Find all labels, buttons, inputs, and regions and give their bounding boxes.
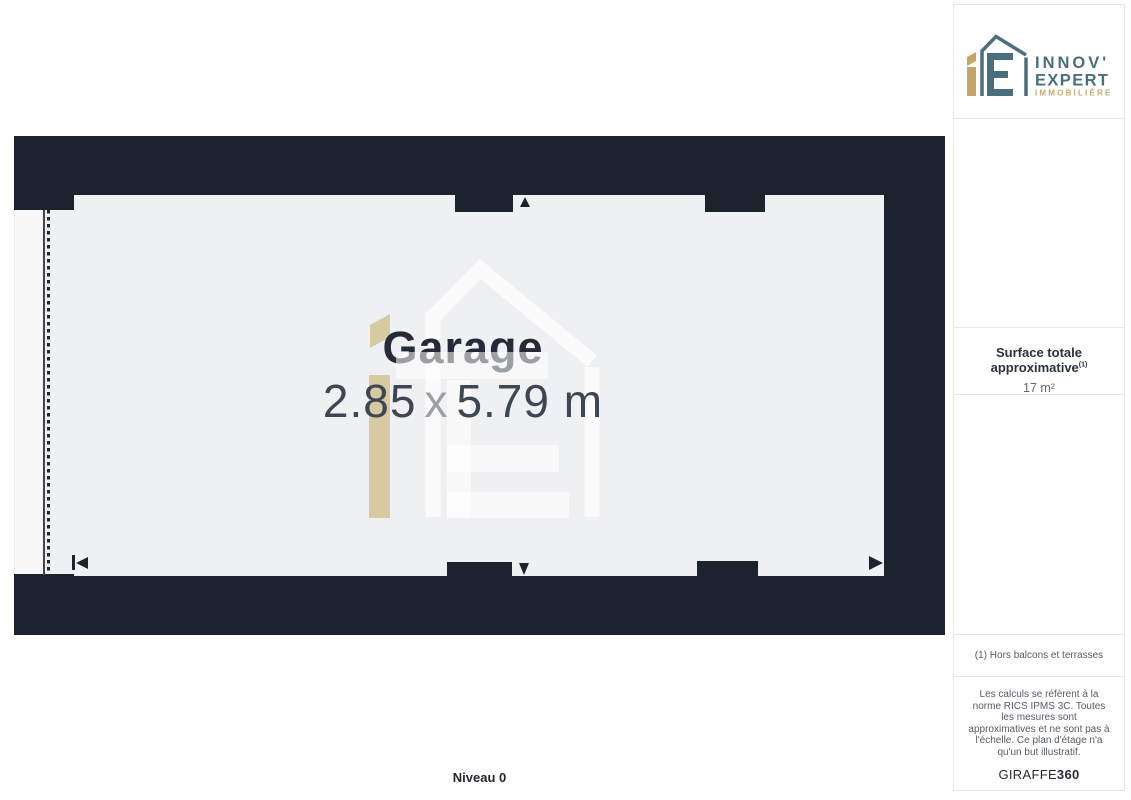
surface-label: Surface totale approximative(1) (954, 345, 1124, 375)
wall-bottom-pier-2 (697, 561, 758, 576)
dimension-separator: x (416, 375, 456, 427)
logo-line1: INNOV' (1035, 54, 1109, 72)
level-label: Niveau 0 (14, 770, 945, 785)
wall-top-pier-2 (705, 195, 765, 212)
exterior-strip (14, 210, 42, 574)
sidebar-spacer-middle (954, 395, 1124, 635)
room-width: 2.85 (323, 375, 417, 427)
dimension-arrow-right-icon (869, 556, 883, 570)
floorplan-area: Garage 2.85x5.79 m Niveau 0 (0, 0, 953, 800)
surface-value: 17 m² (954, 381, 1124, 395)
wall-bottom-pier-1 (447, 562, 512, 576)
room-length: 5.79 m (456, 375, 603, 427)
wall-right (884, 136, 945, 635)
logo-line2: EXPERT (1035, 72, 1109, 90)
page: Garage 2.85x5.79 m Niveau 0 INNOV' EXPER… (0, 0, 1131, 800)
disclaimer-section: Les calculs se réfèrent à la norme RICS … (954, 677, 1124, 790)
agency-logo: INNOV' EXPERT IMMOBILIÈRE (954, 5, 1124, 119)
footnote: (1) Hors balcons et terrasses (954, 635, 1124, 677)
disclaimer-text: Les calculs se réfèrent à la norme RICS … (967, 689, 1111, 758)
watermark-overlay-band (396, 352, 548, 379)
dimension-arrow-up-icon (520, 197, 530, 207)
wall-bottom (14, 576, 945, 635)
giraffe-brand-name: GIRAFFE (998, 767, 1056, 782)
room-dimensions: 2.85x5.79 m (42, 375, 884, 427)
floorplan: Garage 2.85x5.79 m (14, 136, 945, 635)
info-sidebar: INNOV' EXPERT IMMOBILIÈRE Surface totale… (953, 4, 1125, 791)
dimension-arrow-down-icon (519, 563, 529, 575)
giraffe360-brand: GIRAFFE360 (967, 769, 1111, 781)
wall-top (14, 136, 945, 195)
wall-top-pier-1 (455, 195, 513, 212)
giraffe-brand-suffix: 360 (1057, 767, 1080, 782)
logo-line3: IMMOBILIÈRE (1035, 89, 1113, 98)
wall-top-left-pier (14, 195, 74, 210)
dimension-arrow-left-bar (72, 555, 75, 570)
agency-logo-icon: INNOV' EXPERT IMMOBILIÈRE (964, 24, 1114, 99)
surface-footnote-marker: (1) (1079, 362, 1088, 369)
surface-label-text: Surface totale approximative (991, 345, 1082, 375)
sidebar-spacer-top (954, 119, 1124, 328)
surface-section: Surface totale approximative(1) 17 m² (954, 328, 1124, 395)
dimension-arrow-left-icon (76, 557, 88, 569)
